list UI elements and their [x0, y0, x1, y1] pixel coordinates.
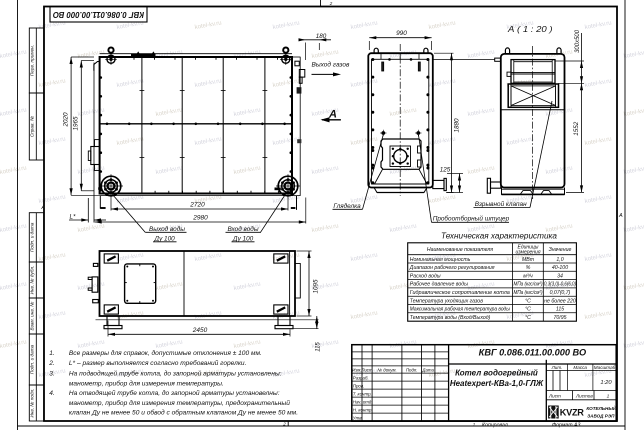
svg-text:клапан Ду не менее 50 и обвод: клапан Ду не менее 50 и обвод с обратным…	[69, 409, 298, 417]
svg-text:Масса: Масса	[573, 365, 587, 370]
svg-text:КВГ 0.086.011.00.000 ВО: КВГ 0.086.011.00.000 ВО	[479, 347, 586, 357]
svg-text:Масштаб: Масштаб	[594, 365, 616, 370]
svg-text:115: 115	[556, 307, 564, 313]
svg-text:№ докум.: № докум.	[377, 367, 396, 372]
svg-text:не более 220: не более 220	[544, 298, 576, 304]
svg-text:манометр, прибор для измерения: манометр, прибор для измерения температу…	[69, 399, 290, 407]
svg-text:Нач. отд.: Нач. отд.	[353, 399, 373, 404]
svg-text:40-100: 40-100	[552, 265, 568, 271]
svg-text:Все размеры для справок, допус: Все размеры для справок, допустимые откл…	[69, 349, 262, 357]
svg-text:2020: 2020	[62, 112, 69, 128]
svg-text:измерения: измерения	[515, 250, 540, 256]
svg-text:Пров.: Пров.	[353, 383, 365, 388]
svg-text:Лист: Лист	[548, 393, 561, 398]
svg-text:Перв. примен.: Перв. примен.	[30, 45, 35, 76]
svg-text:Изм.: Изм.	[352, 367, 361, 372]
svg-text:Подп. и дата: Подп. и дата	[30, 222, 35, 252]
svg-text:2720: 2720	[189, 201, 205, 208]
svg-text:L* – размер выполняется соглас: L* – размер выполняется согласно требова…	[69, 359, 247, 367]
svg-text:Разраб.: Разраб.	[353, 375, 369, 380]
svg-text:Инв. № дубл.: Инв. № дубл.	[30, 266, 35, 295]
svg-text:м³/ч: м³/ч	[523, 273, 533, 279]
svg-text:Температура уходящих газов: Температура уходящих газов	[410, 298, 483, 304]
svg-text:Н. контр.: Н. контр.	[353, 407, 373, 412]
svg-text:манометр, прибор для измерения: манометр, прибор для измерения температу…	[69, 379, 224, 387]
svg-text:Техническая характеристика: Техническая характеристика	[441, 232, 557, 241]
svg-text:Вход воды: Вход воды	[228, 225, 259, 233]
svg-text:Heatexpert-КВа-1,0-ГЛЖ: Heatexpert-КВа-1,0-ГЛЖ	[450, 379, 544, 388]
svg-text:0,3(3,0)-0,6(6,0): 0,3(3,0)-0,6(6,0)	[544, 282, 576, 288]
svg-text:Диапазон рабочего регулировани: Диапазон рабочего регулирования	[409, 265, 495, 271]
svg-text:А ( 1 : 20 ): А ( 1 : 20 )	[507, 24, 553, 34]
svg-text:4.: 4.	[49, 390, 55, 397]
svg-text:300х500: 300х500	[575, 29, 581, 53]
svg-text:Взрывной клапан: Взрывной клапан	[475, 200, 527, 208]
svg-text:Формат А3: Формат А3	[552, 422, 580, 428]
svg-text:°С: °С	[525, 315, 531, 321]
svg-text:2980: 2980	[192, 214, 208, 221]
svg-text:1552: 1552	[573, 121, 580, 136]
svg-text:А: А	[40, 205, 45, 211]
svg-text:Гидравлическое сопротивление к: Гидравлическое сопротивление котла	[410, 290, 510, 296]
svg-text:1095: 1095	[313, 279, 320, 294]
svg-text:Ду 100: Ду 100	[154, 235, 176, 242]
svg-text:125: 125	[440, 167, 451, 174]
svg-text:Дата: Дата	[421, 367, 434, 372]
svg-text:Котел водогрейный: Котел водогрейный	[455, 368, 538, 377]
svg-text:Лит.: Лит.	[551, 365, 563, 370]
svg-text:34: 34	[557, 273, 563, 279]
svg-text:Значение: Значение	[549, 247, 572, 253]
svg-text:Взам. инв. №: Взам. инв. №	[30, 302, 35, 331]
svg-text:Наименование показателя: Наименование показателя	[427, 247, 493, 253]
svg-text:1: 1	[607, 393, 610, 399]
svg-text:Листов: Листов	[575, 393, 593, 398]
svg-text:2.: 2.	[48, 360, 55, 367]
svg-text:Расход воды: Расход воды	[410, 273, 441, 279]
svg-text:1,0: 1,0	[556, 257, 563, 263]
svg-text:А: А	[618, 213, 623, 219]
svg-text:Подп. и дата: Подп. и дата	[30, 344, 35, 374]
svg-text:Справ. №: Справ. №	[30, 116, 35, 137]
svg-text:МПа (кгс/см²): МПа (кгс/см²)	[514, 282, 543, 288]
svg-text:1:20: 1:20	[600, 380, 612, 386]
svg-text:КВГ 0.086.011.00.000 ВО: КВГ 0.086.011.00.000 ВО	[53, 10, 144, 19]
svg-text:Подп.: Подп.	[406, 367, 418, 372]
svg-text:1.: 1.	[49, 350, 55, 357]
svg-text:2: 2	[282, 422, 286, 427]
svg-text:ЗАВОД РЭП: ЗАВОД РЭП	[587, 414, 615, 419]
svg-text:Выход воды: Выход воды	[149, 225, 185, 233]
svg-text:Рабочее давление воды: Рабочее давление воды	[410, 282, 468, 288]
svg-text:МПа (кгс/см²): МПа (кгс/см²)	[514, 290, 543, 296]
svg-text:Ду 100: Ду 100	[232, 235, 254, 242]
svg-text:3.: 3.	[49, 371, 55, 378]
svg-text:Максимальная рабочая температу: Максимальная рабочая температура воды	[410, 307, 510, 313]
svg-text:Утв.: Утв.	[353, 415, 363, 420]
svg-text:°С: °С	[525, 307, 531, 313]
svg-text:На подводящей трубе котла, до: На подводящей трубе котла, до запорной а…	[69, 370, 282, 378]
svg-text:180: 180	[316, 33, 327, 40]
svg-text:Номинальная мощность: Номинальная мощность	[410, 257, 471, 263]
svg-text:KVZR: KVZR	[560, 408, 584, 418]
svg-text:Т. контр.: Т. контр.	[353, 391, 372, 396]
svg-text:1: 1	[473, 422, 476, 428]
svg-text:Копировал: Копировал	[482, 422, 508, 428]
svg-text:0,07(0,7): 0,07(0,7)	[550, 290, 571, 296]
svg-text:%: %	[526, 265, 531, 271]
svg-text:КОТЕЛЬНЫЙ: КОТЕЛЬНЫЙ	[586, 404, 617, 411]
svg-text:Температура воды (Вход/Выход): Температура воды (Вход/Выход)	[410, 315, 491, 321]
svg-text:Выход газов: Выход газов	[312, 60, 350, 68]
svg-text:115: 115	[316, 342, 322, 352]
svg-text:2: 2	[329, 1, 333, 6]
svg-text:2450: 2450	[192, 327, 208, 334]
svg-text:°С: °С	[525, 298, 531, 304]
svg-text:990: 990	[396, 30, 407, 37]
svg-text:Лист: Лист	[360, 367, 373, 372]
svg-text:L*: L*	[70, 214, 77, 221]
svg-text:МВт: МВт	[522, 257, 535, 263]
svg-text:Гляделка: Гляделка	[333, 202, 361, 210]
svg-text:70/95: 70/95	[554, 315, 567, 321]
svg-text:Пробоотборный штуцер: Пробоотборный штуцер	[433, 214, 510, 222]
svg-text:На отводящей трубе котла, до з: На отводящей трубе котла, до запорной ар…	[69, 389, 280, 397]
svg-text:1880: 1880	[454, 118, 461, 133]
svg-text:1965: 1965	[73, 116, 80, 131]
svg-text:Инв. № подл.: Инв. № подл.	[30, 388, 35, 417]
